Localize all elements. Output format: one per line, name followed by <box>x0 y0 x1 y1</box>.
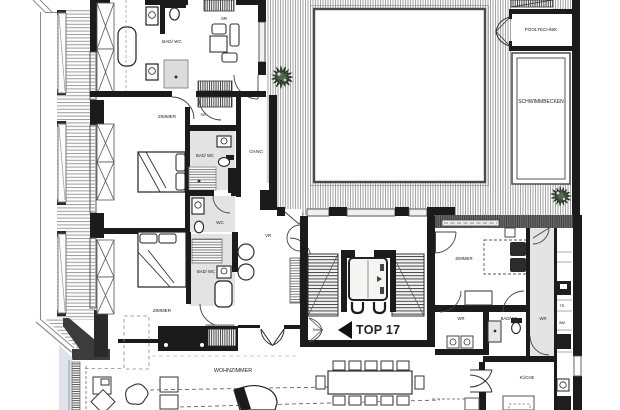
svg-text:BAD/ WC: BAD/ WC <box>196 153 214 158</box>
svg-text:SCHWIMMBECKEN: SCHWIMMBECKEN <box>518 99 564 105</box>
svg-text:SR: SR <box>200 113 206 117</box>
svg-text:WR: WR <box>540 316 547 321</box>
svg-text:BAD/ WC: BAD/ WC <box>162 39 182 44</box>
svg-text:WR: WR <box>458 316 465 321</box>
svg-text:WOHNZIMMER: WOHNZIMMER <box>214 368 252 374</box>
svg-text:ZIMMER: ZIMMER <box>153 308 172 313</box>
svg-text:TOP 17: TOP 17 <box>356 323 400 337</box>
svg-text:WM: WM <box>559 321 565 325</box>
svg-text:POOLTECHNIK: POOLTECHNIK <box>525 27 559 32</box>
svg-text:GANG: GANG <box>249 149 263 154</box>
svg-text:VR: VR <box>265 233 271 238</box>
svg-text:SR: SR <box>221 16 227 21</box>
svg-text:ZIMMER: ZIMMER <box>158 114 177 119</box>
svg-text:TR: TR <box>560 304 565 308</box>
svg-text:WC: WC <box>216 220 224 225</box>
svg-text:ZIMMER: ZIMMER <box>455 256 472 261</box>
svg-text:KÜCHE: KÜCHE <box>520 375 535 380</box>
svg-text:BAD/ WC: BAD/ WC <box>197 269 215 274</box>
